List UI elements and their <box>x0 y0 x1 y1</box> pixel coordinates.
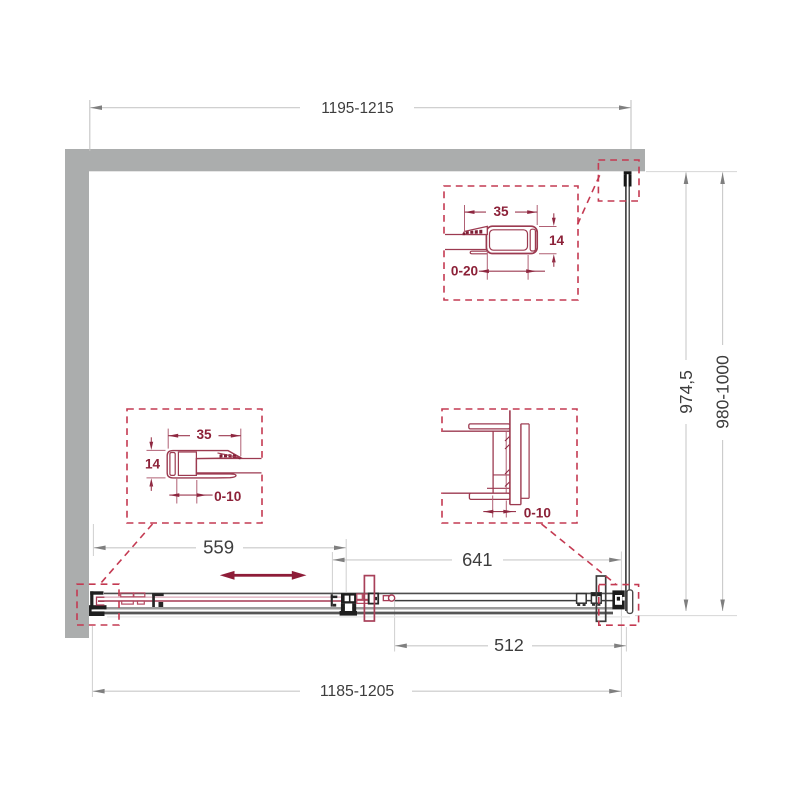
svg-text:35: 35 <box>493 204 509 219</box>
svg-text:35: 35 <box>196 427 212 442</box>
svg-text:974,5: 974,5 <box>676 370 696 414</box>
svg-text:0-10: 0-10 <box>214 489 241 504</box>
svg-text:14: 14 <box>549 233 565 248</box>
svg-text:512: 512 <box>494 635 524 655</box>
svg-text:1195-1215: 1195-1215 <box>321 100 393 117</box>
svg-text:980-1000: 980-1000 <box>713 355 733 429</box>
svg-text:641: 641 <box>462 550 492 570</box>
svg-text:14: 14 <box>145 457 161 472</box>
svg-text:0-20: 0-20 <box>451 263 478 278</box>
svg-text:0-10: 0-10 <box>524 506 551 521</box>
svg-text:1185-1205: 1185-1205 <box>320 683 395 700</box>
svg-text:559: 559 <box>203 537 234 558</box>
